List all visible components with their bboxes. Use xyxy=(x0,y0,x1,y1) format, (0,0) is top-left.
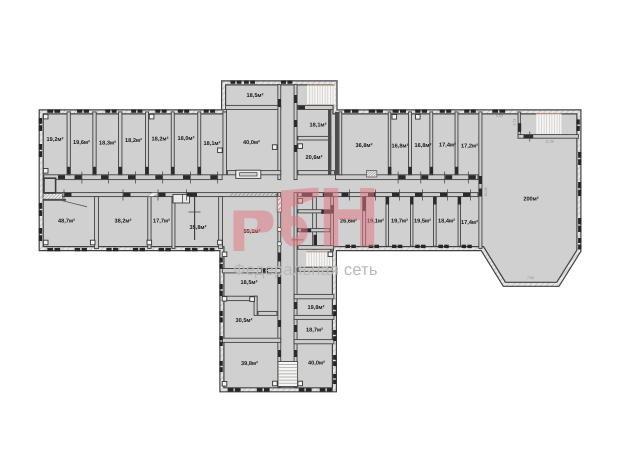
svg-text:36,8м²: 36,8м² xyxy=(356,143,373,149)
svg-text:40,0м²: 40,0м² xyxy=(243,140,260,146)
svg-text:16,8м²: 16,8м² xyxy=(392,144,409,150)
svg-text:18,7м²: 18,7м² xyxy=(306,328,323,334)
svg-text:19,7м²: 19,7м² xyxy=(391,219,408,225)
svg-text:5,52: 5,52 xyxy=(496,114,503,118)
svg-text:18,1м²: 18,1м² xyxy=(310,123,327,129)
svg-text:30,5м²: 30,5м² xyxy=(236,318,253,324)
svg-text:18,3м²: 18,3м² xyxy=(99,141,116,147)
svg-text:48,7м²: 48,7м² xyxy=(58,219,75,225)
svg-text:200м²: 200м² xyxy=(523,197,538,203)
svg-text:7,56: 7,56 xyxy=(527,276,534,280)
svg-text:18,2м²: 18,2м² xyxy=(152,137,169,143)
svg-text:11,36: 11,36 xyxy=(545,139,554,143)
svg-text:19,8м²: 19,8м² xyxy=(308,305,325,311)
svg-text:Федеральная сеть: Федеральная сеть xyxy=(233,261,378,279)
svg-text:16,8м²: 16,8м² xyxy=(415,143,432,149)
svg-text:19,6м²: 19,6м² xyxy=(73,140,90,146)
svg-text:17,4м²: 17,4м² xyxy=(439,143,456,149)
svg-text:19,5м²: 19,5м² xyxy=(414,219,431,225)
svg-text:38,2м²: 38,2м² xyxy=(115,219,132,225)
svg-text:18,0м²: 18,0м² xyxy=(178,136,195,142)
svg-text:18,2м²: 18,2м² xyxy=(125,138,142,144)
svg-text:1,73: 1,73 xyxy=(512,119,516,126)
svg-text:40,0м²: 40,0м² xyxy=(308,361,325,367)
svg-text:39,8м²: 39,8м² xyxy=(241,361,258,367)
svg-text:18,5м²: 18,5м² xyxy=(247,93,264,99)
svg-text:18,1м²: 18,1м² xyxy=(204,141,221,147)
svg-text:35,8м²: 35,8м² xyxy=(190,225,207,231)
svg-text:17,2м²: 17,2м² xyxy=(461,144,478,150)
svg-text:18,4м²: 18,4м² xyxy=(438,219,455,225)
svg-text:20,6м²: 20,6м² xyxy=(306,155,323,161)
svg-text:19,2м²: 19,2м² xyxy=(47,137,64,143)
svg-text:18,5м²: 18,5м² xyxy=(241,280,258,286)
svg-text:16,09: 16,09 xyxy=(484,188,488,197)
svg-text:17,4м²: 17,4м² xyxy=(461,220,478,226)
svg-text:17,7м²: 17,7м² xyxy=(153,219,170,225)
